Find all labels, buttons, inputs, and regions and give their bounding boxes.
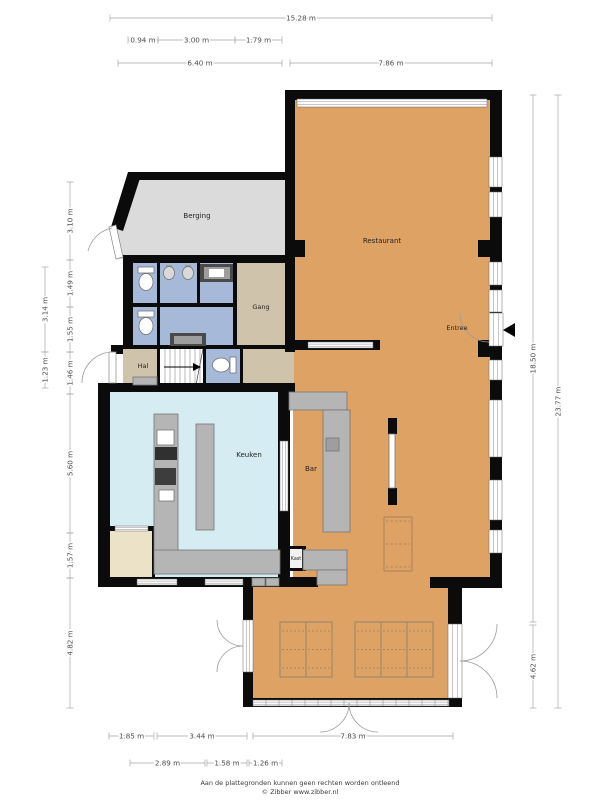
dimension-label: 7.86 m — [378, 59, 403, 68]
wall — [478, 240, 490, 257]
wall — [157, 263, 160, 304]
fixture — [174, 336, 202, 344]
wall — [123, 255, 290, 263]
dimension-label: 3.00 m — [184, 36, 209, 45]
dimension-label: 23.77 m — [554, 387, 563, 417]
room-label-kast: Kast — [291, 556, 301, 562]
dimension-label: 1.79 m — [246, 36, 271, 45]
wall — [128, 172, 290, 180]
wall — [285, 90, 502, 100]
footer-copyright: © Zibber www.zibber.nl — [0, 788, 600, 796]
dimension-label: 1.58 m — [214, 759, 239, 768]
window — [489, 192, 502, 217]
wall — [478, 340, 490, 357]
door-swing-arc — [217, 620, 243, 646]
window — [489, 290, 502, 312]
fixture — [138, 311, 154, 317]
wall — [286, 548, 289, 570]
wall — [157, 349, 160, 385]
door-leaf — [109, 352, 116, 383]
fixture — [323, 410, 350, 532]
wall — [388, 418, 397, 434]
sanitary-fixture — [164, 267, 175, 280]
room-label-hal: Hal — [138, 362, 149, 370]
door-swing-arc — [88, 228, 112, 251]
dimension-label: 1.85 m — [119, 732, 144, 741]
dimension-label: 15.28 m — [286, 14, 316, 23]
terrace-floor — [251, 580, 454, 702]
sanitary-fixture — [139, 318, 153, 335]
window — [253, 700, 449, 706]
fixture — [230, 357, 236, 373]
dimension-label: 3.44 m — [189, 732, 214, 741]
window — [489, 400, 502, 457]
sanitary-fixture — [213, 358, 230, 372]
window — [205, 579, 243, 585]
sanitary-fixture — [183, 267, 194, 280]
cream-room-floor — [108, 530, 155, 577]
wall — [203, 349, 206, 385]
dimension-label: 1.57 m — [66, 543, 75, 568]
sanitary-fixture — [139, 274, 153, 291]
room-label-berging: Berging — [183, 212, 210, 220]
fixture — [326, 438, 339, 451]
footer-disclaimer: Aan de plattegronden kunnen geen rechten… — [0, 779, 600, 787]
dimension-label: 2.89 m — [155, 759, 180, 768]
fixture — [289, 392, 347, 410]
window — [280, 441, 288, 511]
wall — [123, 345, 290, 349]
window — [489, 262, 502, 285]
wall — [157, 307, 160, 345]
door-swing-arc — [82, 352, 113, 383]
room-label-keuken: Keuken — [236, 451, 262, 459]
fixture — [266, 578, 279, 586]
fixture — [155, 468, 176, 485]
dimension-label: 1.55 m — [66, 317, 75, 342]
dimension-label: 1.23 m — [41, 357, 50, 382]
dimension-label: 4.62 m — [529, 654, 538, 679]
fixture — [209, 269, 224, 277]
wall — [388, 488, 397, 505]
dimension-label: 6.40 m — [187, 59, 212, 68]
wall — [240, 349, 243, 385]
wall — [133, 303, 237, 307]
window — [489, 313, 503, 346]
dimension-label: 7.83 m — [340, 732, 365, 741]
wall — [430, 577, 502, 588]
fixture — [389, 434, 395, 488]
window — [489, 157, 502, 187]
dimension-label: 1.26 m — [253, 759, 278, 768]
wall — [197, 263, 200, 304]
wall — [123, 263, 133, 347]
room-label-gang: Gang — [252, 303, 269, 311]
window — [448, 624, 462, 698]
door-swing-arc — [320, 703, 349, 732]
dimension-label: 1.49 m — [66, 271, 75, 296]
dimension-label: 3.10 m — [66, 208, 75, 233]
door-swing-arc — [460, 661, 497, 698]
entrance-arrow-icon — [503, 323, 515, 337]
window — [308, 342, 373, 348]
floorplan-drawing: BergingRestaurantGangHalKeukenBarEntreeK… — [0, 0, 600, 800]
wall — [98, 383, 295, 392]
dimension-label: 1.46 m — [66, 360, 75, 385]
window — [489, 360, 502, 380]
fixture — [159, 490, 174, 501]
fixture — [252, 578, 265, 586]
dimension-label: 18.50 m — [529, 344, 538, 374]
wall — [285, 100, 295, 352]
window — [297, 99, 487, 107]
room-label-bar: Bar — [305, 465, 317, 473]
door-swing-arc — [460, 624, 497, 661]
window — [489, 530, 502, 553]
wall — [295, 240, 305, 257]
dimension-label: 3.14 m — [41, 297, 50, 322]
window — [489, 480, 502, 520]
window — [115, 526, 148, 531]
door-swing-arc — [349, 703, 378, 732]
room-label-restaurant: Restaurant — [363, 237, 402, 245]
fixture — [317, 570, 347, 585]
dimension-label: 4.82 m — [66, 630, 75, 655]
fixture — [154, 550, 280, 574]
wall — [98, 392, 110, 579]
door-swing-arc — [217, 646, 243, 672]
fixture — [196, 424, 214, 530]
room-label-entree: Entree — [446, 324, 467, 332]
fixture — [133, 377, 157, 385]
dimension-label: 0.94 m — [130, 36, 155, 45]
floorplan-page: BergingRestaurantGangHalKeukenBarEntreeK… — [0, 0, 600, 800]
dimension-label: 5.60 m — [66, 451, 75, 476]
fixture — [157, 430, 174, 445]
window — [137, 579, 177, 585]
window — [243, 620, 253, 672]
fixture — [155, 447, 177, 460]
fixture — [303, 550, 347, 570]
fixture — [138, 267, 154, 273]
